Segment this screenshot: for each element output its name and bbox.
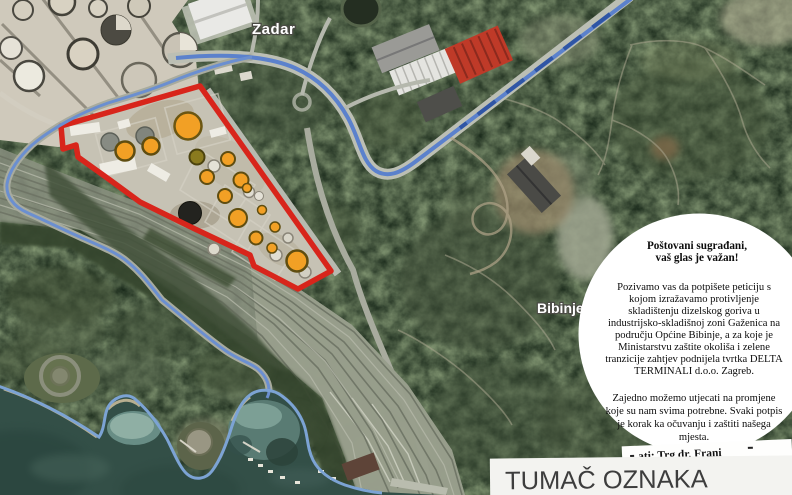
svg-text:TUMAČ OZNAKA: TUMAČ OZNAKA <box>505 464 708 495</box>
svg-text:mjesta.: mjesta. <box>679 432 709 443</box>
svg-text:Zadar: Zadar <box>252 21 295 38</box>
svg-text:koje su nam svima potrebne. Sv: koje su nam svima potrebne. Svaki potpis <box>606 406 783 417</box>
svg-text:području Općine Bibinje, a za: području Općine Bibinje, a za koje je <box>615 330 773 341</box>
svg-text:kojom izražavamo protivljenje: kojom izražavamo protivljenje <box>629 294 759 305</box>
svg-text:Poštovani sugrađani,: Poštovani sugrađani, <box>647 240 747 252</box>
svg-text:tranzicije zahtjev podnijela t: tranzicije zahtjev podnijela tvrtka DELT… <box>605 354 783 365</box>
svg-text:Pozivamo vas da potpišete peti: Pozivamo vas da potpišete peticiju s <box>617 282 771 293</box>
svg-text:skladištenju dizelskog goriva: skladištenju dizelskog goriva u <box>628 306 760 317</box>
svg-text:je korak ka očuvanju i zaštiti: je korak ka očuvanju i zaštiti našega <box>616 419 771 430</box>
svg-text:TERMINALI d.o.o. Zagreb.: TERMINALI d.o.o. Zagreb. <box>634 366 754 377</box>
svg-text:industrijsko-skladišnoj zoni G: industrijsko-skladišnoj zoni Gaženica na <box>608 318 780 329</box>
svg-text:Bibinje: Bibinje <box>537 300 584 316</box>
svg-text:vaš glas je važan!: vaš glas je važan! <box>656 252 739 264</box>
svg-text:Zajedno možemo utjecati na pro: Zajedno možemo utjecati na promjene <box>613 393 776 404</box>
svg-text:Ministarstvu zaštite okoliša i: Ministarstvu zaštite okoliša i zelene <box>618 342 770 353</box>
